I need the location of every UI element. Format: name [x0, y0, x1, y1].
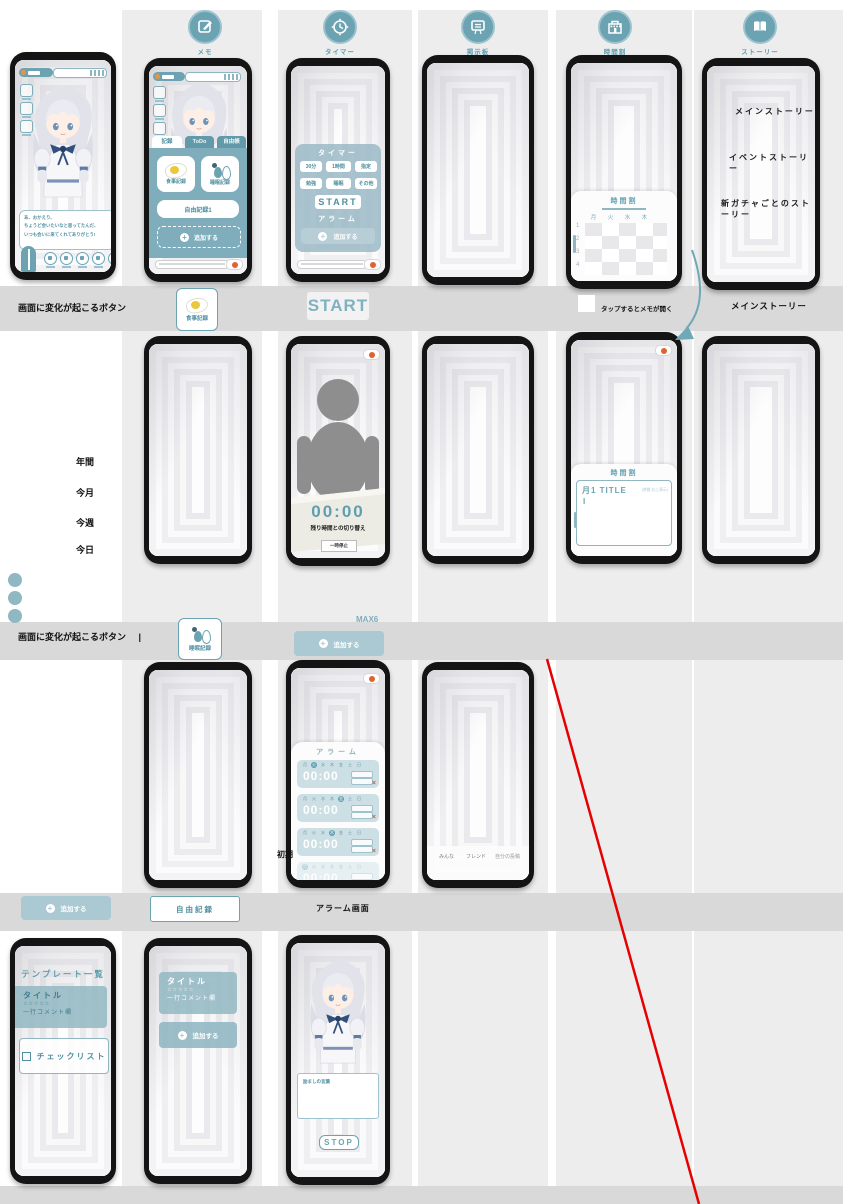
alarm-day[interactable]: 日 [356, 762, 362, 768]
alarm-day-row: 月火水木金土日 [302, 796, 362, 802]
delete-alarm-button[interactable]: × [372, 780, 376, 787]
alarm-day-row: 月火水木金土日 [302, 762, 362, 768]
clock-icon[interactable] [323, 10, 357, 44]
alarm-day[interactable]: 金 [338, 796, 344, 802]
alarm-day-row: 月火水木金土日 [302, 830, 362, 836]
start-label: START [308, 296, 368, 316]
template-list-screen: テンプレート一覧 タイトル ☆☆☆☆☆ 一行コメント欄 チェックリスト [15, 946, 111, 1176]
scrollbar[interactable] [573, 235, 576, 253]
alarm-day[interactable]: 木 [329, 762, 335, 768]
phone-story: メインストーリー イベントストーリー 新ガチャごとのストーリー [702, 58, 820, 290]
nav-icon-4[interactable] [92, 252, 105, 265]
alarm-option-pill[interactable] [351, 771, 373, 778]
alarm-day[interactable]: 木 [329, 830, 335, 836]
duration-custom-button[interactable]: 指定 [355, 161, 377, 172]
column-header-board: 掲示板 [418, 10, 538, 56]
alarm-time: 00:00 [303, 871, 339, 880]
checkbox-icon[interactable] [22, 1052, 31, 1061]
timer-stop-screen: 励ましの言葉 STOP [291, 943, 385, 1177]
phone-memo-row2 [144, 336, 252, 564]
phone-board-row3: みんな フレンド 自分の投稿 [422, 662, 534, 888]
memo-screen-row3 [149, 670, 247, 880]
delete-alarm-button[interactable]: × [372, 848, 376, 855]
alarm-day[interactable]: 金 [338, 762, 344, 768]
alarm-day[interactable]: 月 [302, 762, 308, 768]
plus-icon: + [46, 904, 55, 913]
timetable-cell[interactable] [619, 262, 636, 275]
phone-template-list: テンプレート一覧 タイトル ☆☆☆☆☆ 一行コメント欄 チェックリスト [10, 938, 116, 1184]
timetable-cell[interactable] [585, 262, 602, 275]
character-avatar [301, 959, 375, 1071]
entry-card[interactable]: 月1 TITLE (時間 右に表示) I [576, 480, 672, 546]
alarm-card[interactable]: 月火水木金土日 00:00 × [297, 794, 379, 822]
progress-bar [53, 68, 107, 78]
tab-freenote[interactable]: 自由帳 [217, 136, 246, 148]
timetable-cell[interactable] [636, 223, 653, 236]
coin-icon [21, 70, 26, 75]
flow-dot [8, 609, 22, 623]
cheer-message: 励ましの言葉 [303, 1079, 330, 1085]
phone-timetable-row2: 時間割 月1 TITLE (時間 右に表示) I [566, 332, 682, 564]
mode-sleep-button[interactable]: 睡眠 [326, 178, 351, 189]
mode-study-button[interactable]: 勉強 [300, 178, 322, 189]
mode-other-button[interactable]: その他 [355, 178, 377, 189]
story-screen-row2 [707, 344, 815, 556]
alarm-day[interactable]: 水 [320, 796, 326, 802]
alarm-day[interactable]: 土 [347, 830, 353, 836]
alarm-day[interactable]: 金 [338, 830, 344, 836]
card-title: タイトル [167, 976, 237, 987]
column-header-timer: タイマー [280, 10, 400, 56]
alarm-day[interactable]: 火 [311, 864, 317, 870]
alarm-day[interactable]: 木 [329, 864, 335, 870]
annotation-band-4 [0, 1186, 843, 1204]
band1-note: タップするとメモが開く [601, 303, 673, 313]
memo-screen-row2 [149, 344, 247, 556]
start-button[interactable]: START [315, 195, 361, 209]
timetable-sheet: 時間割 月火水木 1234 [571, 191, 677, 281]
design-board: メモ タイマー 掲示板 時間割 ストーリー あ、おかえり、 ちょうど会いたいなと… [0, 0, 843, 1204]
cheer-message-box: 励ましの言葉 [297, 1073, 379, 1119]
home-screen: あ、おかえり、 ちょうど会いたいなと思ってたんだ、 いつも会いに来てくれてありが… [15, 60, 111, 272]
alarm-day[interactable]: 土 [347, 796, 353, 802]
timetable-grid [585, 223, 667, 275]
alarm-title: アラーム [291, 747, 385, 757]
tab-todo[interactable]: ToDo [185, 136, 214, 148]
add-button[interactable]: + 追加する [157, 226, 241, 248]
timetable-period-label: 2 [576, 236, 579, 249]
phone-template-detail: タイトル ☆☆☆☆☆ 一行コメント欄 + 追加する [144, 938, 252, 1184]
speech-line: あ、おかえり、 [24, 214, 110, 222]
text-cursor: | [139, 632, 142, 642]
text-cursor: I [583, 497, 585, 506]
alarm-section-title: アラーム [295, 214, 381, 224]
alarm-card-faded[interactable]: 月火水木金土日 00:00 [297, 862, 379, 880]
free-record-label: 自由記録 [176, 904, 214, 915]
phone-alarm: アラーム 月火水木金土日 00:00 × 月火水木金土日 00:00 × 月火水… [286, 660, 390, 888]
timetable-day-headers: 月火水木 [585, 213, 667, 221]
phone-timer-running: 00:00 残り時間との切り替え 一時停止 [286, 336, 390, 566]
mascot-bird-icon[interactable] [364, 259, 381, 270]
duration-30min-button[interactable]: 30分 [300, 161, 322, 172]
alarm-day[interactable]: 月 [302, 796, 308, 802]
max-count-label: MAX6 [356, 615, 378, 624]
plus-icon: + [178, 1031, 187, 1040]
flow-dot [8, 591, 22, 605]
board-screen [427, 63, 529, 277]
band2-label: 画面に変化が起こるボタン | [18, 630, 141, 643]
alarm-day[interactable]: 木 [329, 796, 335, 802]
book-icon[interactable] [743, 10, 777, 44]
board-tabs-screen: みんな フレンド 自分の投稿 [427, 670, 529, 880]
add-label: 追加する [194, 233, 218, 242]
timer-countdown: 00:00 [291, 502, 385, 522]
alarm-time: 00:00 [303, 837, 339, 851]
alarm-day[interactable]: 月 [302, 864, 308, 870]
scrollbar[interactable] [574, 512, 577, 528]
fried-egg-icon [186, 298, 208, 313]
phone-story-row2 [702, 336, 820, 564]
alarm-day-row: 月火水木金土日 [302, 864, 362, 870]
phone-timer: タイマー 30分 1時間 指定 勉強 睡眠 その他 START アラーム + 追… [286, 58, 390, 282]
memo-screen: 記録 ToDo 自由帳 食事記録 睡眠記録 自由記録1 + 追加する [149, 66, 247, 274]
alarm-day[interactable]: 水 [320, 864, 326, 870]
column-label: ストーリー [700, 46, 820, 56]
phone-timer-stop: 励ましの言葉 STOP [286, 935, 390, 1185]
memo-panel: 食事記録 睡眠記録 自由記録1 + 追加する [149, 148, 247, 258]
school-icon[interactable] [598, 10, 632, 44]
nav-icon-3[interactable] [76, 252, 89, 265]
pause-label: 一時停止 [330, 543, 348, 549]
progress-bar [185, 72, 241, 82]
band2-add-button[interactable]: + 追加する [294, 631, 384, 656]
timetable-cell[interactable] [602, 236, 619, 249]
flow-dot [8, 573, 22, 587]
card-title: タイトル [23, 990, 107, 1001]
title-underline [602, 208, 646, 210]
timetable-cell[interactable] [619, 236, 636, 249]
timetable-cell[interactable] [619, 249, 636, 262]
timetable-cell[interactable] [636, 249, 653, 262]
timetable-period-numbers: 1234 [576, 223, 579, 275]
template-card[interactable]: タイトル ☆☆☆☆☆ 一行コメント欄 [159, 972, 237, 1014]
band3-add-button[interactable]: + 追加する [21, 896, 111, 920]
alarm-day[interactable]: 火 [311, 830, 317, 836]
alarm-option-pill[interactable] [351, 805, 373, 812]
alarm-day[interactable]: 土 [347, 762, 353, 768]
timetable-day-label: 火 [602, 213, 619, 221]
column-label: タイマー [280, 46, 400, 56]
timetable-cell[interactable] [619, 223, 636, 236]
timetable-period-label: 1 [576, 223, 579, 236]
footer-code-pill [155, 260, 229, 269]
annotation-band-3 [0, 893, 843, 931]
alarm-day[interactable]: 金 [338, 864, 344, 870]
band1-label: 画面に変化が起こるボタン [18, 301, 126, 314]
alarm-time: 00:00 [303, 803, 339, 817]
alarm-card[interactable]: 月火水木金土日 00:00 × [297, 760, 379, 788]
mascot-bird-icon[interactable] [226, 259, 243, 270]
meal-label: 食事記録 [186, 314, 208, 322]
stop-label: STOP [324, 1138, 354, 1147]
meal-record-button[interactable]: 食事記録 [157, 156, 195, 192]
alarm-day[interactable]: 水 [320, 762, 326, 768]
board-footer [427, 846, 529, 880]
timetable-cell[interactable] [585, 223, 602, 236]
alarm-day[interactable]: 日 [356, 864, 362, 870]
checklist-label: チェックリスト [37, 1051, 107, 1062]
room-door-icon[interactable] [21, 246, 36, 272]
alarm-card[interactable]: 月火水木金土日 00:00 × [297, 828, 379, 856]
phone-memo: 記録 ToDo 自由帳 食事記録 睡眠記録 自由記録1 + 追加する [144, 58, 252, 282]
timetable-screen: 時間割 月火水木 1234 [571, 63, 677, 281]
timetable-title: 時間割 [571, 468, 677, 478]
timer-title: タイマー [295, 148, 381, 158]
timetable-cell[interactable] [602, 223, 619, 236]
annotation-band-1 [0, 286, 843, 331]
mascot-bird-icon[interactable] [655, 345, 672, 356]
alarm-option-pill[interactable] [351, 778, 373, 785]
sleep-record-button[interactable]: 睡眠記録 [201, 156, 239, 192]
plus-icon: + [319, 639, 328, 648]
timer-screen: タイマー 30分 1時間 指定 勉強 睡眠 その他 START アラーム + 追… [291, 66, 385, 274]
entry-title: 月1 TITLE [582, 485, 627, 496]
template-detail-screen: タイトル ☆☆☆☆☆ 一行コメント欄 + 追加する [149, 946, 247, 1176]
sleep-icon [210, 163, 230, 179]
free-record-button[interactable]: 自由記録1 [157, 200, 239, 218]
range-label-year: 年間 [76, 455, 94, 468]
meal-record-label: 食事記録 [166, 178, 186, 185]
band1-meal-button[interactable]: 食事記録 [176, 288, 218, 331]
mascot-bird-icon[interactable] [363, 349, 380, 360]
column-label: メモ [145, 46, 265, 56]
plus-icon: + [318, 232, 327, 241]
duration-1hour-button[interactable]: 1時間 [326, 161, 351, 172]
timetable-cell[interactable] [602, 249, 619, 262]
mascot-bird-icon[interactable] [363, 673, 380, 684]
band3-caption: アラーム画面 [316, 903, 370, 914]
sleep-record-label: 睡眠記録 [210, 179, 230, 186]
nav-icon-2[interactable] [60, 252, 73, 265]
phone-timetable: 時間割 月火水木 1234 [566, 55, 682, 289]
timetable-cell[interactable] [636, 236, 653, 249]
alarm-sheet: アラーム 月火水木金土日 00:00 × 月火水木金土日 00:00 × 月火水… [291, 742, 385, 880]
range-label-month: 今月 [76, 486, 94, 499]
timetable-period-label: 4 [576, 262, 579, 275]
band3-free-record-button[interactable]: 自由記録 [150, 896, 240, 922]
board-tab-my-posts[interactable]: 自分の投稿 [495, 853, 520, 860]
timer-panel: タイマー 30分 1時間 指定 勉強 睡眠 その他 START アラーム + 追… [295, 144, 381, 252]
speech-line: ちょうど会いたいなと思ってたんだ、 [24, 222, 110, 230]
timetable-cell[interactable] [636, 262, 653, 275]
alarm-day[interactable]: 火 [311, 796, 317, 802]
nav-icon-5[interactable] [108, 252, 111, 265]
alarm-side-label: 初期 [277, 849, 293, 860]
timetable-entry-sheet: 時間割 月1 TITLE (時間 右に表示) I [571, 464, 677, 556]
timetable-cell[interactable] [653, 223, 667, 236]
alarm-day[interactable]: 月 [302, 830, 308, 836]
story-screen: メインストーリー イベントストーリー 新ガチャごとのストーリー [707, 66, 815, 282]
timetable-cell[interactable] [585, 236, 602, 249]
phone-home: あ、おかえり、 ちょうど会いたいなと思ってたんだ、 いつも会いに来てくれてありが… [10, 52, 116, 280]
alarm-day[interactable]: 水 [320, 830, 326, 836]
card-comment: 一行コメント欄 [167, 993, 237, 1002]
template-card[interactable]: タイトル ☆☆☆☆☆ 一行コメント欄 [15, 986, 107, 1028]
band2-sleep-button[interactable]: 睡眠記録 [178, 618, 222, 660]
speech-line: いつも会いに来てくれてありがとう! [24, 231, 110, 239]
alarm-day[interactable]: 日 [356, 796, 362, 802]
footer-code-pill [297, 260, 367, 269]
plus-icon: + [180, 233, 189, 242]
fried-egg-icon [165, 163, 187, 178]
add-label: 追加する [334, 639, 360, 649]
level-chip [28, 71, 40, 75]
timetable-cell[interactable] [653, 236, 667, 249]
timetable-cell[interactable] [585, 249, 602, 262]
phone-board [422, 55, 534, 285]
board-tab-friends[interactable]: フレンド [466, 853, 486, 860]
status-pill [19, 68, 53, 77]
story-item-event[interactable]: イベントストーリー [729, 152, 815, 174]
timetable-cell[interactable] [653, 249, 667, 262]
column-header-timetable: 時間割 [555, 10, 675, 56]
sleep-label: 睡眠記録 [189, 644, 211, 652]
alarm-option-pill[interactable] [351, 846, 373, 853]
timer-running-screen: 00:00 残り時間との切り替え 一時停止 [291, 344, 385, 558]
alarm-option-pill[interactable] [351, 839, 373, 846]
band1-start-button[interactable]: START [307, 292, 369, 320]
board-screen-row2 [427, 344, 529, 556]
phone-board-row2 [422, 336, 534, 564]
column-header-story: ストーリー [700, 10, 820, 56]
range-label-day: 今日 [76, 543, 94, 556]
alarm-screen: アラーム 月火水木金土日 00:00 × 月火水木金土日 00:00 × 月火水… [291, 668, 385, 880]
add-label: 追加する [61, 903, 87, 913]
template-add-button[interactable]: + 追加する [159, 1022, 237, 1048]
alarm-option-pill[interactable] [351, 812, 373, 819]
range-label-week: 今週 [76, 516, 94, 529]
alarm-day[interactable]: 火 [311, 762, 317, 768]
template-list-title: テンプレート一覧 [15, 968, 111, 980]
timer-caption[interactable]: 残り時間との切り替え [291, 524, 385, 532]
bulletin-board-icon[interactable] [461, 10, 495, 44]
nav-icon-1[interactable] [44, 252, 57, 265]
column-header-memo: メモ [145, 10, 265, 56]
character-avatar [23, 84, 103, 206]
stop-button[interactable]: STOP [319, 1135, 359, 1150]
timetable-cell[interactable] [602, 262, 619, 275]
alarm-add-button[interactable]: + 追加する [301, 228, 375, 244]
band1-story-label: メインストーリー [731, 300, 807, 312]
add-label: 追加する [333, 232, 357, 241]
band2-label-text: 画面に変化が起こるボタン [18, 632, 126, 642]
story-item-gacha[interactable]: 新ガチャごとのストーリー [721, 198, 815, 220]
free-record-label: 自由記録1 [184, 205, 211, 214]
board-tab-everyone[interactable]: みんな [439, 853, 454, 860]
phone-memo-row3 [144, 662, 252, 888]
story-item-main[interactable]: メインストーリー [735, 106, 815, 117]
entry-note: (時間 右に表示) [642, 488, 668, 493]
timetable-cell[interactable] [653, 262, 667, 275]
memo-icon[interactable] [188, 10, 222, 44]
delete-alarm-button[interactable]: × [372, 814, 376, 821]
timetable-day-label: 水 [619, 213, 636, 221]
alarm-time: 00:00 [303, 769, 339, 783]
pause-button[interactable]: 一時停止 [321, 540, 357, 552]
tab-record[interactable]: 記録 [152, 136, 182, 148]
alarm-day[interactable]: 土 [347, 864, 353, 870]
timetable-period-label: 3 [576, 249, 579, 262]
card-comment: 一行コメント欄 [23, 1007, 107, 1016]
alarm-day[interactable]: 日 [356, 830, 362, 836]
person-silhouette [291, 364, 385, 504]
band1-white-square[interactable] [578, 295, 595, 312]
checklist-card[interactable]: チェックリスト [19, 1038, 109, 1074]
sleep-icon [190, 627, 210, 643]
timetable-title: 時間割 [571, 196, 677, 206]
timetable-entry-screen: 時間割 月1 TITLE (時間 右に表示) I [571, 340, 677, 556]
add-label: 追加する [193, 1030, 219, 1040]
status-pill [153, 72, 185, 81]
timetable-day-label: 木 [636, 213, 653, 221]
alarm-option-pill[interactable] [351, 873, 373, 880]
timetable-day-label: 月 [585, 213, 602, 221]
speech-bubble[interactable]: あ、おかえり、 ちょうど会いたいなと思ってたんだ、 いつも会いに来てくれてありが… [19, 210, 111, 250]
